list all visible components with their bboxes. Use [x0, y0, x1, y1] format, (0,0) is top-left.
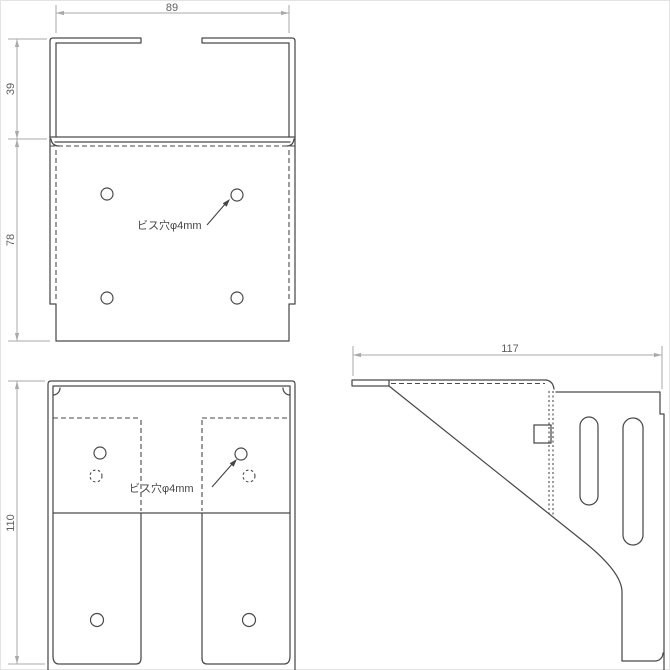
dim-text-78: 78: [5, 234, 17, 246]
slot-cutout: [580, 417, 598, 505]
dimension-width-89: 89: [56, 2, 289, 33]
bend-fold-lines: [549, 391, 553, 517]
front-view: ビス穴φ4mm 110: [5, 381, 295, 670]
corner-relief-arcs: [53, 388, 290, 395]
screw-hole: [94, 447, 106, 459]
dimension-height-110: 110: [5, 381, 45, 664]
dim-text-89: 89: [166, 2, 178, 14]
front-view-screw-holes: [90, 447, 256, 627]
screw-hole: [243, 614, 256, 627]
dimension-depth-117: 117: [353, 343, 662, 389]
drawing-canvas: ビス穴φ4mm 89 39 78: [0, 0, 670, 670]
bracket-three-view-drawing: ビス穴φ4mm 89 39 78: [0, 0, 670, 670]
dimension-plate-78: 78: [5, 139, 50, 341]
dimension-flange-39: 39: [5, 39, 47, 139]
slot-cutout: [623, 418, 643, 545]
screw-hole: [231, 189, 243, 201]
screw-hole: [235, 448, 247, 460]
screw-hole: [101, 292, 113, 304]
hole-note-label: ビス穴φ4mm: [129, 481, 194, 495]
screw-hole: [101, 188, 113, 200]
screw-hole-hidden: [243, 470, 255, 482]
top-view-screw-holes: [101, 188, 243, 304]
dim-text-39: 39: [5, 83, 17, 95]
screw-hole: [91, 614, 104, 627]
side-view: 117: [352, 343, 664, 670]
image-border: [1, 1, 670, 670]
front-view-hole-callout: ビス穴φ4mm: [129, 459, 237, 495]
front-view-hidden-edges: [53, 418, 290, 511]
dim-text-110: 110: [5, 514, 17, 532]
front-view-outline: [48, 381, 295, 670]
side-view-cutouts: [534, 417, 643, 545]
dim-text-117: 117: [501, 343, 519, 355]
side-view-outline: [352, 380, 664, 670]
leader-line: [207, 203, 226, 225]
hole-note-label: ビス穴φ4mm: [137, 218, 202, 232]
top-view-hole-callout: ビス穴φ4mm: [137, 199, 230, 232]
top-view: ビス穴φ4mm 89 39 78: [5, 2, 295, 341]
top-view-outline: [50, 38, 295, 341]
screw-hole: [231, 292, 243, 304]
leader-line: [212, 463, 233, 487]
screw-hole-hidden: [90, 470, 102, 482]
